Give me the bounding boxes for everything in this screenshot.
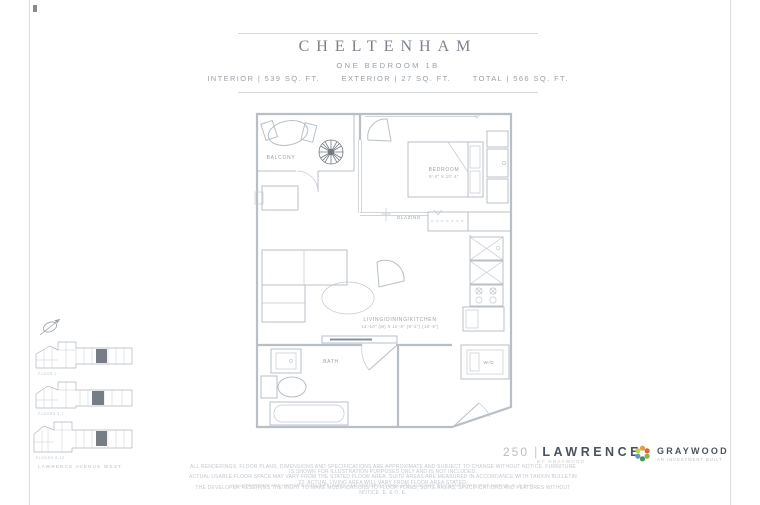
bedroom-label: BEDROOM bbox=[429, 167, 460, 173]
living-dining: LIVING/DINING/KITCHEN 14'-10" (M) X 11'-… bbox=[255, 186, 439, 343]
living-dimensions: 14'-10" (M) X 11'-9" (9'-2") (10'-9") bbox=[361, 324, 439, 329]
fridge bbox=[463, 307, 504, 331]
header-rule-bottom bbox=[238, 92, 538, 93]
page-edge-right bbox=[730, 0, 731, 505]
armchair bbox=[377, 260, 404, 287]
disclaimer-footnote: ILLUSTRATIONS ARE ARTIST'S CONCEPT. SIZE… bbox=[208, 483, 558, 488]
living-label: LIVING/DINING/KITCHEN bbox=[363, 317, 436, 323]
entry-door bbox=[455, 403, 490, 425]
bath-label: BATH bbox=[323, 359, 339, 365]
total-area: TOTAL | 566 SQ. FT. bbox=[473, 74, 569, 83]
washer-dryer: W/D bbox=[461, 345, 509, 379]
project-logo-number: 250 bbox=[503, 445, 529, 459]
project-logo: 250 | LAWRENCE bbox=[503, 444, 642, 459]
balcony-label: BALCONY bbox=[267, 155, 296, 161]
project-logo-name: LAWRENCE bbox=[542, 445, 642, 459]
corner-artifact bbox=[33, 5, 37, 12]
sofa bbox=[262, 250, 347, 322]
project-logo-divider: | bbox=[534, 444, 537, 459]
dishwasher bbox=[470, 261, 503, 284]
key-plan-2-caption: FLOORS 3-7 bbox=[38, 412, 64, 416]
balcony-table bbox=[261, 117, 317, 149]
key-plan-1-caption: FLOOR 2 bbox=[38, 372, 57, 376]
bedroom-dimensions: 9'-0" X 10'-4" bbox=[429, 174, 459, 179]
bathtub bbox=[270, 402, 348, 425]
disclaimer-text: ALL RENDERINGS, FLOOR PLANS, DIMENSIONS … bbox=[188, 465, 578, 496]
reading-chair bbox=[368, 119, 391, 141]
desk bbox=[255, 186, 298, 210]
street-label: LAWRENCE AVENUE WEST bbox=[38, 464, 122, 469]
balcony: BALCONY bbox=[257, 114, 354, 192]
north-arrow-icon bbox=[40, 319, 60, 335]
interior-area: INTERIOR | 539 SQ. FT. bbox=[207, 74, 320, 83]
closet bbox=[428, 212, 511, 231]
floor-plan: BALCONY BEDROOM 9'-0" X 10 bbox=[248, 103, 520, 437]
area-stats: INTERIOR | 539 SQ. FT. EXTERIOR | 27 SQ.… bbox=[178, 74, 598, 83]
bathroom-vanity bbox=[271, 349, 301, 373]
bathroom: BATH bbox=[257, 345, 452, 427]
key-plan-2: FLOORS 3-7 bbox=[36, 382, 132, 416]
exterior-area: EXTERIOR | 27 SQ. FT. bbox=[342, 74, 452, 83]
key-plan-3: FLOORS 8-12 bbox=[34, 422, 132, 460]
key-plan-1: FLOOR 2 bbox=[36, 342, 132, 376]
stove bbox=[470, 285, 503, 306]
floorplan-page: CHELTENHAM ONE BEDROOM 1B INTERIOR | 539… bbox=[0, 0, 760, 505]
developer-tagline: AN INVESTMENT BUILT bbox=[657, 457, 729, 462]
developer-logo: GRAYWOOD AN INVESTMENT BUILT bbox=[634, 445, 729, 462]
page-edge-left bbox=[29, 0, 30, 505]
page-title: CHELTENHAM bbox=[238, 38, 538, 56]
media-console bbox=[322, 336, 397, 343]
toilet bbox=[261, 376, 306, 398]
washer-dryer-label: W/D bbox=[484, 360, 495, 365]
graywood-logo-icon bbox=[634, 445, 651, 462]
bedroom-storage bbox=[487, 131, 508, 203]
rug bbox=[322, 282, 374, 314]
header-rule-top bbox=[238, 33, 538, 34]
kitchen bbox=[463, 235, 504, 331]
key-plan-3-caption: FLOORS 8-12 bbox=[36, 456, 64, 460]
glazing-label: GLAZING bbox=[397, 215, 421, 220]
bedroom: BEDROOM 9'-0" X 10'-4" bbox=[360, 113, 508, 203]
developer-name: GRAYWOOD bbox=[657, 446, 729, 456]
kitchen-sink bbox=[470, 237, 503, 260]
unit-type-subtitle: ONE BEDROOM 1B bbox=[238, 61, 538, 70]
floor-medallion bbox=[319, 140, 343, 164]
glazing-partition: GLAZING bbox=[359, 140, 443, 221]
key-plans: FLOOR 2 FLOORS 3-7 FLOORS 8-12 LAWRENCE … bbox=[32, 316, 144, 472]
